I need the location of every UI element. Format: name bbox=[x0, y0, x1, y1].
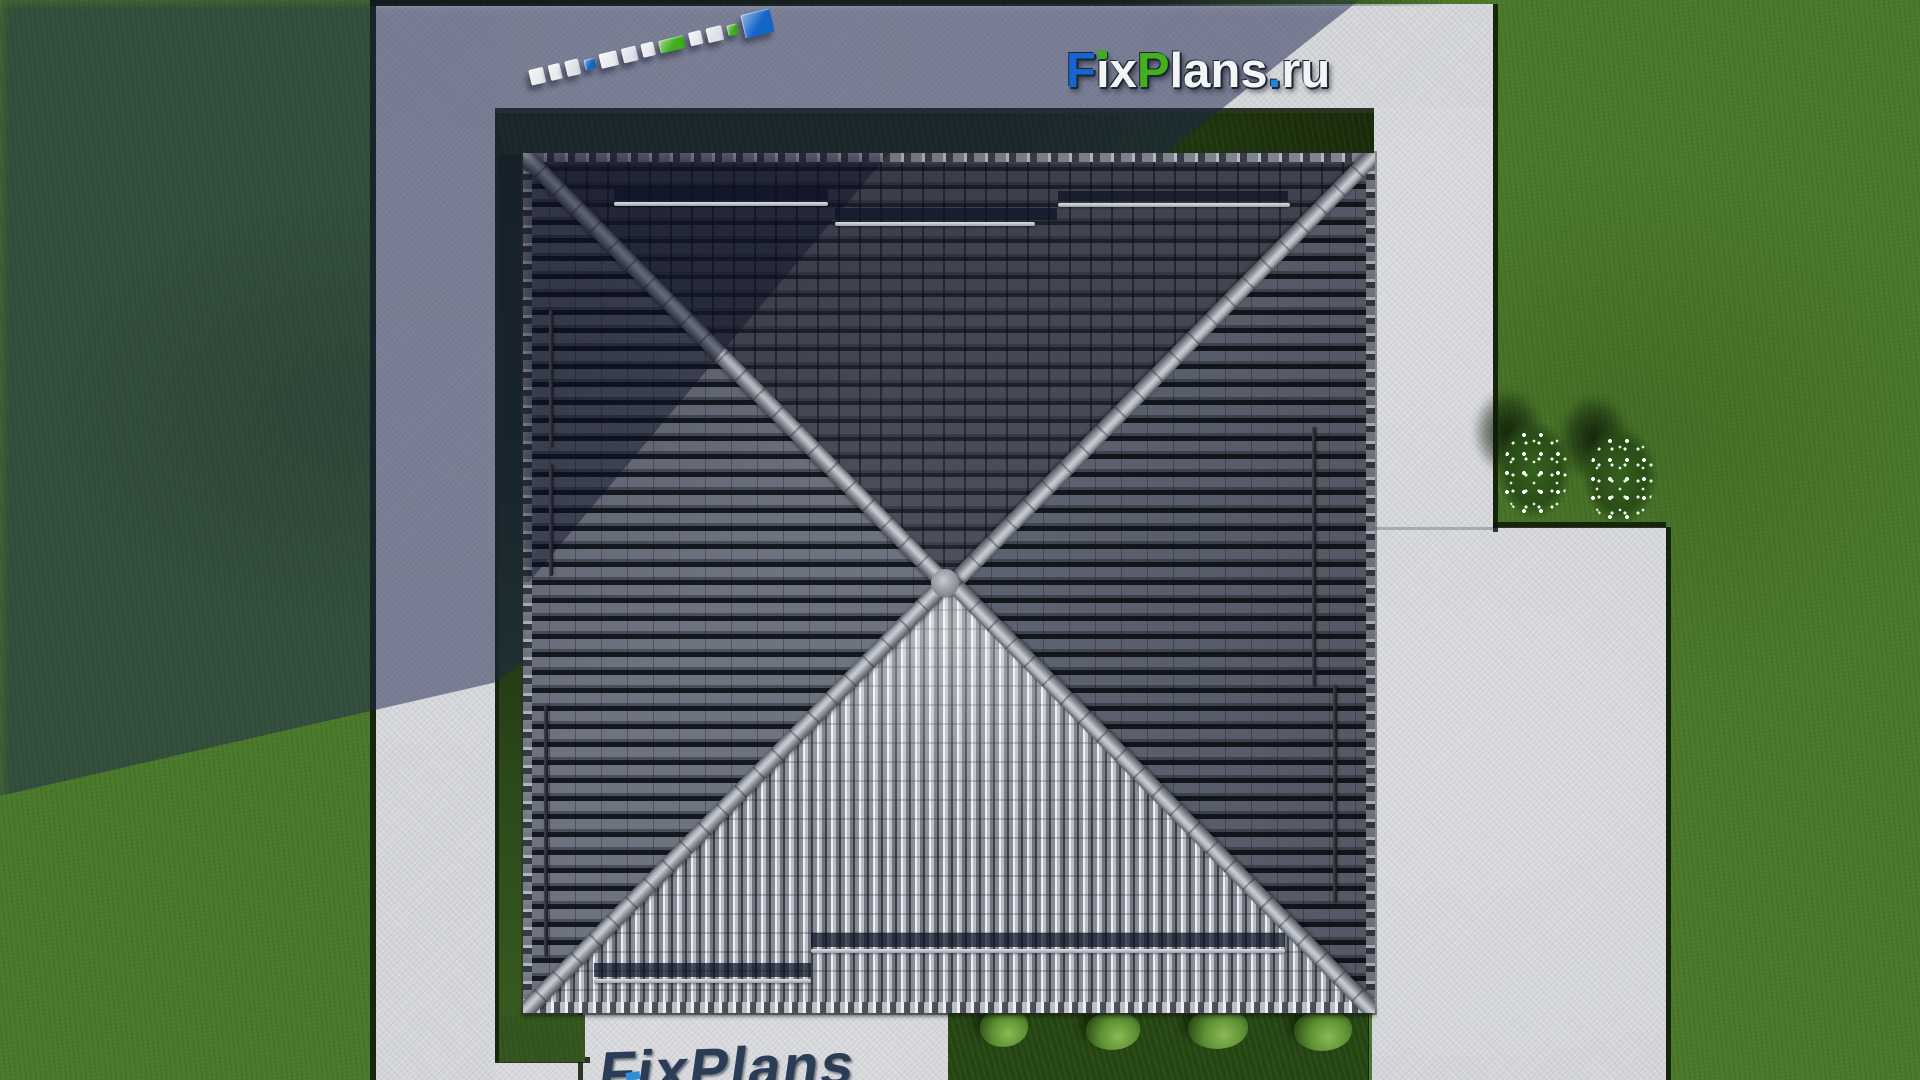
logo-3d-block bbox=[621, 45, 639, 63]
brand-letter-tittle bbox=[1098, 50, 1107, 59]
brand-letter: a bbox=[1183, 47, 1210, 96]
logo-3d-block bbox=[583, 57, 596, 70]
bush bbox=[1086, 1012, 1140, 1050]
gutter-rail bbox=[544, 705, 548, 957]
grass-pocket-bottom-left bbox=[499, 1015, 585, 1062]
snow-band bbox=[835, 208, 1057, 220]
brand-letter: u bbox=[1300, 47, 1330, 96]
flower-bed bbox=[1578, 418, 1662, 530]
edge-patio-right bbox=[1666, 527, 1671, 1080]
brand-logo-text: FixPlans.ru bbox=[1066, 44, 1330, 98]
walk-bottom-left bbox=[495, 1062, 590, 1080]
brand-letter: s bbox=[1240, 47, 1267, 96]
snow-rail bbox=[1058, 203, 1290, 207]
logo-3d-block bbox=[548, 63, 563, 81]
snow-rail bbox=[811, 949, 1285, 953]
flower-blossoms bbox=[1588, 436, 1654, 524]
logo-3d-block bbox=[705, 24, 724, 42]
gutter-rail bbox=[1312, 427, 1316, 687]
hedge-bottom bbox=[948, 1013, 1368, 1080]
snow-rail bbox=[835, 222, 1035, 226]
logo-3d-block bbox=[640, 41, 656, 58]
brand-letter: n bbox=[1210, 47, 1240, 96]
brand-letter: i bbox=[1096, 47, 1110, 96]
logo-3d-block bbox=[528, 67, 546, 86]
scene-aerial-house-render: FixPlans.ru FixPlans bbox=[0, 0, 1920, 1080]
ridge-apex-cap bbox=[931, 569, 959, 597]
brand-logo: FixPlans.ru bbox=[1066, 47, 1330, 96]
logo-3d-block bbox=[726, 23, 739, 36]
gutter-rail bbox=[549, 310, 553, 448]
bush bbox=[1294, 1011, 1352, 1051]
brand-letter: l bbox=[1170, 47, 1184, 96]
gutter-rail bbox=[549, 464, 553, 576]
gutter-rail bbox=[1333, 685, 1337, 903]
bottom-watermark-chip bbox=[626, 1071, 641, 1080]
brand-letter: F bbox=[1066, 47, 1096, 96]
logo-3d-block bbox=[564, 58, 581, 77]
patio-seam bbox=[1374, 527, 1493, 530]
snow-rail bbox=[594, 979, 811, 983]
logo-3d-block bbox=[658, 35, 686, 54]
path-right-strip bbox=[1374, 108, 1493, 532]
brand-letter: P bbox=[1137, 47, 1170, 96]
brand-letter: r bbox=[1281, 47, 1300, 96]
brand-letter: . bbox=[1268, 47, 1282, 96]
snow-band bbox=[614, 189, 828, 200]
snow-rail bbox=[614, 202, 828, 206]
snow-band bbox=[811, 933, 1285, 947]
brand-letter: x bbox=[1110, 47, 1137, 96]
snow-band bbox=[1058, 191, 1288, 201]
logo-3d-block bbox=[598, 50, 619, 69]
snow-band bbox=[594, 963, 811, 977]
patio-right bbox=[1372, 527, 1666, 1080]
logo-3d-block bbox=[688, 30, 704, 47]
house-hip-roof bbox=[523, 153, 1375, 1013]
